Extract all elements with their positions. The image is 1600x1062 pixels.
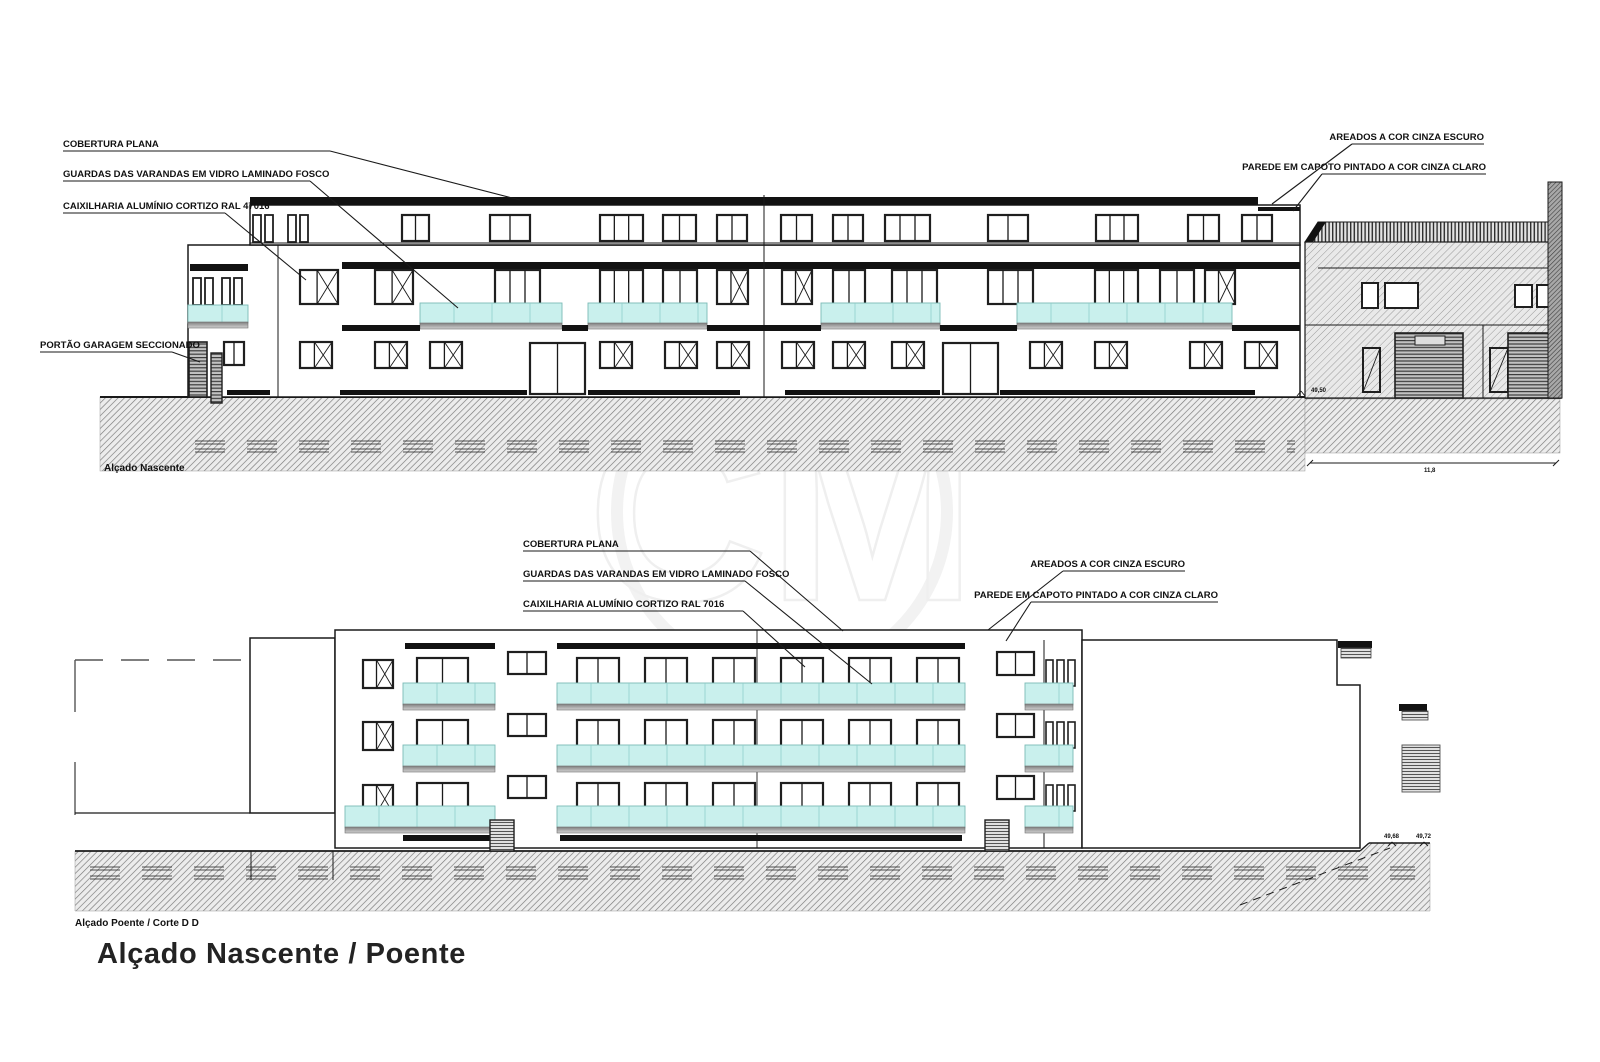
plinth-strip <box>227 390 270 395</box>
roof-wedge-hatch <box>1402 711 1428 720</box>
plinth-strip <box>403 835 490 841</box>
plinth-strip <box>785 390 940 395</box>
leader <box>330 151 520 200</box>
balcony-glass <box>403 745 495 767</box>
label-parede-top: PAREDE EM CAPOTO PINTADO A COR CINZA CLA… <box>1242 162 1486 173</box>
balcony-glass <box>821 303 940 324</box>
roof-wedge-dark <box>1399 704 1427 711</box>
stair-block-hatch <box>1402 745 1440 792</box>
roof-wedge-dark <box>1338 641 1372 648</box>
balcony-base <box>403 766 495 772</box>
balcony-base <box>588 323 707 329</box>
elevation-top-drawing <box>40 144 1562 471</box>
label-caixilharia-bottom: CAIXILHARIA ALUMÍNIO CORTIZO RAL 7016 <box>523 599 724 610</box>
lintel-band <box>557 643 965 649</box>
balcony-glass <box>588 303 707 324</box>
caption-alcado-nascente: Alçado Nascente <box>104 463 185 474</box>
elevation-drawing-canvas: CM COBERTURA PLANA GUARDAS DAS VARANDAS … <box>0 0 1600 1062</box>
window-frame <box>1030 342 1062 368</box>
balcony-glass <box>557 806 965 828</box>
ground-hatch <box>75 843 1430 911</box>
balcony-base <box>1025 704 1073 710</box>
window-frame <box>1096 215 1138 241</box>
neighbour-window <box>1515 285 1532 307</box>
neighbour-window <box>1385 283 1418 308</box>
balcony-base <box>557 827 965 833</box>
slit-window <box>253 215 261 242</box>
right-wall <box>1082 640 1360 848</box>
window-frame <box>1190 342 1222 368</box>
level-mark-top: 49,50 <box>1311 388 1327 394</box>
leader <box>1293 174 1322 211</box>
ground-hatch <box>100 397 1305 471</box>
window-frame <box>363 660 393 688</box>
window-frame <box>892 270 937 304</box>
balcony-glass <box>557 745 965 767</box>
slab-band-segment <box>342 325 420 331</box>
level-mark-bottom-1: 49,68 <box>1384 834 1400 840</box>
label-portao-garagem: PORTÃO GARAGEM SECCIONADO <box>40 340 200 351</box>
balcony-base <box>403 704 495 710</box>
label-areados-top: AREADOS A COR CINZA ESCURO <box>1329 132 1484 143</box>
balcony-base <box>1025 827 1073 833</box>
slab-band-segment <box>562 325 588 331</box>
balcony-glass <box>1017 303 1232 324</box>
balcony-base <box>557 766 965 772</box>
slit-window <box>1046 722 1053 748</box>
window-frame <box>1245 342 1277 368</box>
label-caixilharia-top: CAIXILHARIA ALUMÍNIO CORTIZO RAL 47016 <box>63 201 270 212</box>
caption-alcado-poente: Alçado Poente / Corte D D <box>75 918 199 929</box>
window-frame <box>892 342 924 368</box>
slit-window <box>1057 722 1064 748</box>
plinth-strip <box>560 835 962 841</box>
window-frame <box>600 215 643 241</box>
balcony-base <box>188 322 248 328</box>
window-frame <box>600 342 632 368</box>
annex-slit-window <box>234 278 242 305</box>
window-frame <box>782 342 814 368</box>
slit-window <box>265 215 273 242</box>
label-guardas-varandas-top: GUARDAS DAS VARANDAS EM VIDRO LAMINADO F… <box>63 169 329 180</box>
window-frame <box>717 342 749 368</box>
ground-hatch-neighbour <box>1305 399 1560 453</box>
annex-slit-window <box>193 278 201 305</box>
window-frame <box>300 270 338 304</box>
label-guardas-varandas-bottom: GUARDAS DAS VARANDAS EM VIDRO LAMINADO F… <box>523 569 789 580</box>
roof-wedge-hatch <box>1341 648 1371 658</box>
balcony-glass <box>345 806 495 828</box>
entrance-stairs <box>490 820 514 851</box>
balcony-base <box>420 323 562 329</box>
slit-window <box>1068 660 1075 686</box>
slab-band-segment <box>940 325 1017 331</box>
plinth-strip <box>1000 390 1255 395</box>
window-frame <box>1095 270 1138 304</box>
window-frame <box>988 270 1033 304</box>
balcony-base <box>1025 766 1073 772</box>
slab-band-segment <box>707 325 821 331</box>
window-frame <box>600 270 643 304</box>
slab-band-segment <box>1232 325 1300 331</box>
plinth-strip <box>340 390 527 395</box>
balcony-glass <box>420 303 562 324</box>
dimension-top: 11,8 <box>1424 468 1436 474</box>
page-title: Alçado Nascente / Poente <box>97 938 466 970</box>
slit-window <box>300 215 308 242</box>
level-mark-bottom-2: 49,72 <box>1416 834 1432 840</box>
slit-window <box>1057 660 1064 686</box>
window-frame <box>885 215 930 241</box>
balcony-glass <box>1025 683 1073 705</box>
lintel-band <box>405 643 495 649</box>
garage-door-narrow <box>211 353 222 403</box>
window-frame <box>1095 342 1127 368</box>
label-cobertura-plana-top: COBERTURA PLANA <box>63 139 159 150</box>
slit-window <box>1046 660 1053 686</box>
label-cobertura-plana-bottom: COBERTURA PLANA <box>523 539 619 550</box>
slab-band <box>342 262 1300 269</box>
label-areados-bottom: AREADOS A COR CINZA ESCURO <box>1030 559 1185 570</box>
left-wing <box>250 638 335 813</box>
neighbour-roof-band <box>1305 222 1560 242</box>
neighbour-window <box>1362 283 1378 308</box>
window-frame <box>665 342 697 368</box>
balcony-base <box>821 323 940 329</box>
neighbour-dark-sliver <box>1548 182 1562 398</box>
window-frame <box>495 270 540 304</box>
balcony-glass <box>403 683 495 705</box>
window-frame <box>363 722 393 750</box>
balcony-glass <box>1025 806 1073 828</box>
annex-slit-window <box>222 278 230 305</box>
balcony-glass <box>188 305 248 323</box>
label-parede-bottom: PAREDE EM CAPOTO PINTADO A COR CINZA CLA… <box>974 590 1218 601</box>
parapet-band <box>250 197 1258 205</box>
window-frame <box>430 342 462 368</box>
window-frame <box>833 342 865 368</box>
slit-window <box>288 215 296 242</box>
entrance-stairs <box>985 820 1009 851</box>
balcony-base <box>345 827 495 833</box>
balcony-base <box>557 704 965 710</box>
window-frame <box>375 342 407 368</box>
annex-band <box>190 264 248 271</box>
plinth-strip <box>588 390 740 395</box>
window-frame <box>300 342 332 368</box>
balcony-glass <box>557 683 965 705</box>
neighbour-garage-slot <box>1415 336 1445 345</box>
annex-slit-window <box>205 278 213 305</box>
window-frame <box>1205 270 1235 304</box>
slit-window <box>1068 722 1075 748</box>
window-frame <box>782 270 812 304</box>
window-frame <box>375 270 413 304</box>
balcony-base <box>1017 323 1232 329</box>
window-frame <box>717 270 748 304</box>
balcony-glass <box>1025 745 1073 767</box>
